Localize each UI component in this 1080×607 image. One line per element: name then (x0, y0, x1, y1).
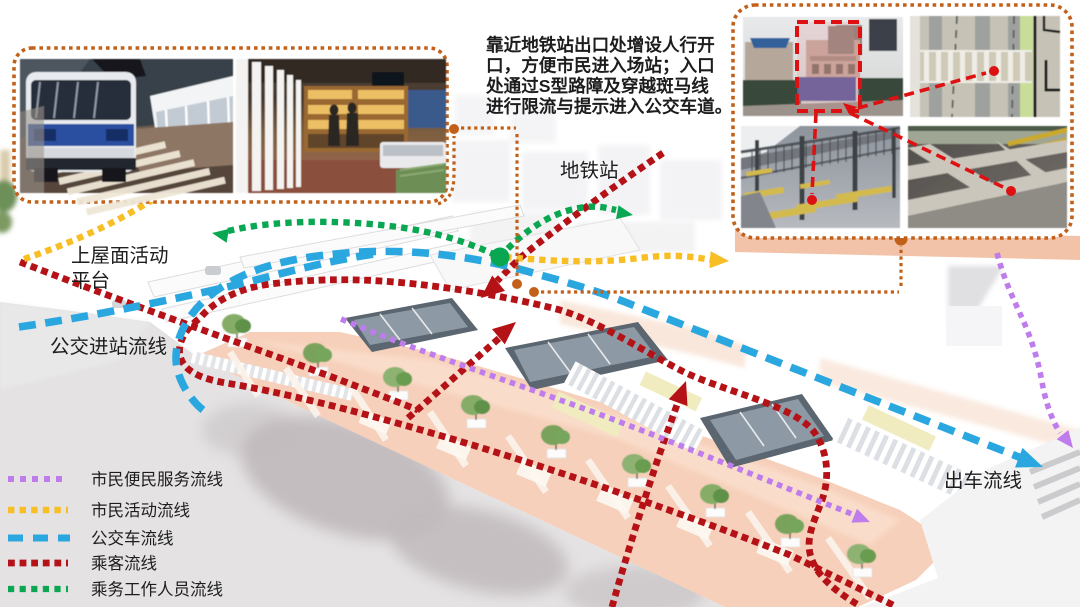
svg-text:地铁站: 地铁站 (560, 160, 619, 182)
svg-text:靠近地铁站出口处增设人行开: 靠近地铁站出口处增设人行开 (486, 35, 715, 55)
svg-text:公交进站流线: 公交进站流线 (50, 336, 167, 358)
svg-text:平台: 平台 (71, 270, 110, 292)
svg-text:市民便民服务流线: 市民便民服务流线 (91, 470, 223, 489)
svg-text:处通过S型路障及穿越斑马线: 处通过S型路障及穿越斑马线 (485, 76, 709, 96)
svg-text:上屋面活动: 上屋面活动 (71, 245, 169, 267)
svg-text:口，方便市民进入场站；入口: 口，方便市民进入场站；入口 (486, 56, 715, 76)
svg-text:乘客流线: 乘客流线 (91, 554, 157, 573)
svg-text:进行限流与提示进入公交车道。: 进行限流与提示进入公交车道。 (486, 97, 732, 117)
svg-text:乘务工作人员流线: 乘务工作人员流线 (91, 580, 223, 599)
svg-text:市民活动流线: 市民活动流线 (91, 501, 190, 520)
svg-text:公交车流线: 公交车流线 (91, 529, 174, 548)
svg-text:出车流线: 出车流线 (944, 470, 1022, 492)
